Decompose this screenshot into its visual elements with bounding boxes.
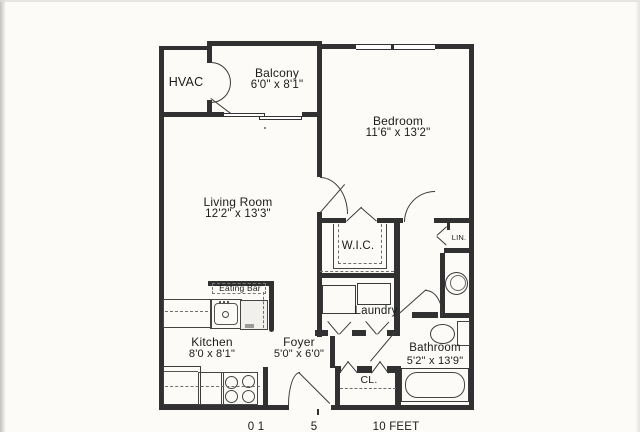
wall [352, 330, 366, 336]
laundry-bifold-door [365, 321, 377, 335]
wall [434, 218, 470, 223]
wall [322, 44, 356, 49]
kitchen-counter [163, 299, 212, 328]
room-dims-balcony: 6'0" x 8'1" [251, 80, 303, 92]
laundry-bifold-door [339, 322, 351, 335]
entry-door-arc [288, 372, 300, 405]
room-label-closet: CL. [361, 375, 378, 386]
wic-bifold-door [360, 207, 377, 222]
hall-bedroom-door-arc [404, 191, 435, 222]
wall [444, 248, 470, 253]
room-label-foyer: Foyer [283, 336, 315, 348]
room-label-living-room: Living Room [204, 196, 273, 208]
wall [435, 44, 474, 49]
room-label-eating-bar: Eating Bar [219, 284, 261, 293]
wall [263, 367, 268, 405]
wall [207, 41, 322, 46]
wall [159, 405, 289, 410]
wall [317, 120, 322, 177]
closet-rod-dash [340, 388, 396, 389]
wall [322, 218, 346, 223]
room-dims-bedroom: 11'6" x 13'2" [366, 128, 431, 140]
counter-dash [165, 311, 208, 312]
wall [469, 44, 474, 410]
room-dims-kitchen: 8'0 x 8'1" [189, 349, 235, 360]
room-label-balcony: Balcony [255, 67, 299, 79]
bedroom-window [356, 44, 435, 50]
linen-door [437, 226, 447, 235]
entry-door-leaf [298, 372, 330, 404]
scan-edge [635, 0, 640, 432]
wall [315, 330, 328, 336]
bathtub-basin [405, 372, 465, 398]
entry-tick [317, 409, 319, 415]
window-mullion [391, 44, 394, 50]
hvac-door-arc [211, 62, 231, 103]
stove-burner [225, 390, 238, 403]
wic-dash [320, 271, 394, 272]
room-dims-living-room: 12'2" x 13'3" [205, 209, 271, 221]
sink-drain [222, 311, 229, 318]
counter-dash [165, 386, 260, 387]
wall [159, 46, 211, 50]
wall [331, 405, 474, 410]
faucet-dot [223, 301, 225, 303]
dryer-icon [357, 283, 391, 305]
wall [159, 112, 224, 117]
eating-bar-dash [263, 292, 264, 328]
faucet-dot [219, 301, 221, 303]
room-label-laundry: Laundry [355, 306, 398, 318]
wall [159, 46, 164, 410]
wall [317, 41, 322, 121]
bathroom-sink-icon [430, 324, 455, 344]
wic-bifold-door [346, 207, 362, 222]
bathroom-door-leaf [399, 289, 427, 314]
stove-burner [242, 390, 255, 403]
room-dims-bathroom: 5'2" x 13'9" [407, 356, 464, 367]
scan-edge [0, 0, 640, 2]
laundry-bifold-door [327, 321, 339, 335]
floor-plan-scan: HVAC Balcony 6'0" x 8'1" Bedroom 11'6" x… [0, 0, 640, 432]
scale-mark-5: 5 [311, 422, 318, 432]
faucet-dot [227, 301, 229, 303]
hall-door-leaf [370, 331, 396, 362]
room-label-linen: LIN. [452, 234, 467, 242]
stove-burner [225, 376, 238, 389]
wall [330, 336, 335, 368]
dishwasher-mark [245, 324, 254, 328]
scale-mark-0-1: 0 1 [248, 422, 265, 432]
room-label-bathroom: Bathroom [409, 343, 460, 355]
scale-mark-10-feet: 10 FEET [373, 422, 420, 432]
toilet-icon-inner [450, 275, 466, 291]
room-label-hvac: HVAC [169, 76, 204, 89]
room-label-bedroom: Bedroom [373, 115, 423, 127]
refrigerator-line [164, 371, 198, 372]
room-dims-foyer: 5'0" x 6'0" [274, 349, 324, 360]
wall [357, 366, 372, 373]
linen-door [436, 236, 446, 245]
room-label-wic: W.I.C. [342, 241, 375, 253]
eating-bar-counter [269, 281, 274, 332]
washer-icon [322, 285, 356, 314]
scan-speck [264, 127, 266, 129]
sliding-door-panel [259, 116, 302, 120]
room-label-kitchen: Kitchen [191, 336, 232, 348]
scan-edge [0, 0, 6, 432]
wall [317, 273, 399, 278]
wall [440, 313, 470, 318]
wall [207, 46, 212, 63]
